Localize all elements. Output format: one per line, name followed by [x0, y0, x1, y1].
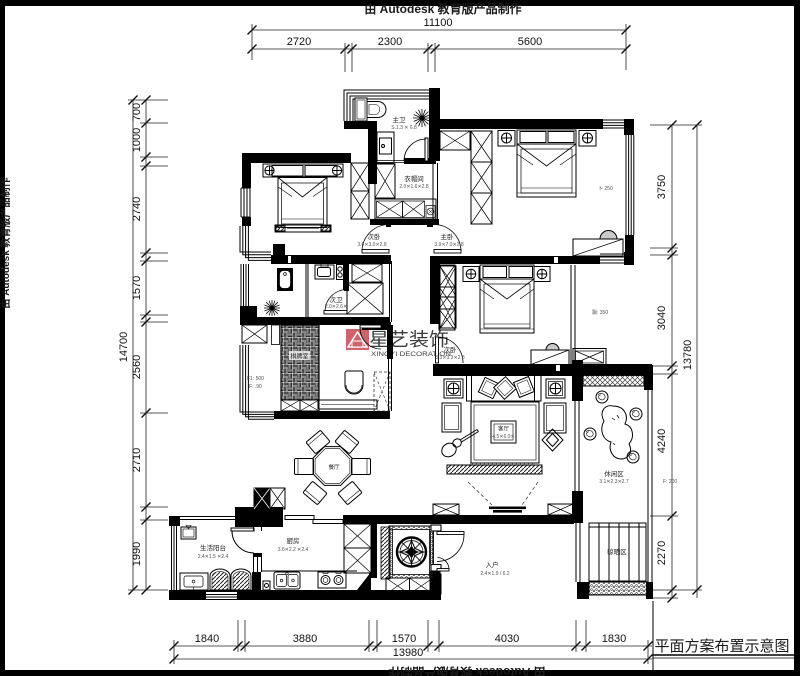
svg-text:1570: 1570	[131, 276, 143, 300]
svg-text:2710: 2710	[131, 448, 143, 472]
svg-text:4.5✕6.0✕: 4.5✕6.0✕	[492, 434, 514, 440]
svg-text:由 Autodesk 教育版产品制作: 由 Autodesk 教育版产品制作	[388, 665, 545, 676]
svg-text:F1: 500: F1: 500	[247, 376, 264, 382]
svg-text:1840: 1840	[195, 633, 219, 645]
svg-text:由 Autodesk 教育版产品制作: 由 Autodesk 教育版产品制作	[0, 177, 12, 308]
svg-text:3.3✕3.3✕2.8: 3.3✕3.3✕2.8	[435, 355, 464, 361]
svg-text:主卧: 主卧	[441, 232, 455, 241]
svg-text:衣帽间: 衣帽间	[404, 174, 424, 183]
svg-text:13980: 13980	[393, 647, 424, 659]
svg-text:2300: 2300	[378, 36, 402, 48]
svg-text:棋牌室: 棋牌室	[290, 353, 308, 361]
svg-text:1830: 1830	[602, 633, 626, 645]
svg-text:2.4✕1.9 / 6.2: 2.4✕1.9 / 6.2	[480, 571, 509, 577]
svg-text:700: 700	[131, 103, 143, 121]
svg-text:2560: 2560	[131, 355, 143, 379]
svg-text:主卫: 主卫	[393, 115, 407, 124]
svg-text:1570: 1570	[392, 633, 416, 645]
svg-text:厨房: 厨房	[287, 536, 300, 545]
svg-text:2.0✕2.6✕: 2.0✕2.6✕	[325, 304, 347, 310]
svg-text:F: 200: F: 200	[663, 479, 677, 485]
svg-text:4240: 4240	[656, 429, 668, 453]
svg-text:入户: 入户	[486, 560, 499, 569]
svg-text:休闲区: 休闲区	[604, 469, 624, 478]
svg-text:2.0✕1.6✕2.8: 2.0✕1.6✕2.8	[399, 184, 428, 190]
svg-text:次卧: 次卧	[368, 232, 382, 241]
svg-text:晾晒区: 晾晒区	[607, 547, 627, 556]
svg-text:1000: 1000	[131, 128, 143, 152]
svg-text:客厅: 客厅	[498, 425, 510, 433]
svg-text:餐厅: 餐厅	[328, 463, 340, 471]
svg-text:3.1✕2.3✕2.7: 3.1✕2.3✕2.7	[599, 479, 628, 485]
svg-text:F: .90: F: .90	[249, 384, 262, 390]
svg-text:S.1.3 ✕ 6.8: S.1.3 ✕ 6.8	[391, 125, 417, 131]
svg-text:2270: 2270	[656, 541, 668, 565]
svg-text:14700: 14700	[118, 332, 130, 363]
svg-text:2720: 2720	[287, 36, 311, 48]
svg-text:4030: 4030	[495, 633, 519, 645]
svg-text:3.9✕7.0✕2.8: 3.9✕7.0✕2.8	[434, 242, 463, 248]
svg-text:平面方案布置示意图: 平面方案布置示意图	[654, 637, 789, 655]
svg-text:3.6✕2.2 ✕2.4: 3.6✕2.2 ✕2.4	[278, 547, 309, 553]
svg-text:3750: 3750	[656, 175, 668, 199]
svg-text:次卫: 次卫	[330, 295, 344, 304]
svg-text:13780: 13780	[682, 340, 694, 371]
svg-text:飘: 350: 飘: 350	[592, 310, 608, 316]
svg-text:由 Autodesk 教育版产品制作: 由 Autodesk 教育版产品制作	[364, 1, 521, 16]
svg-text:1990: 1990	[131, 542, 143, 566]
svg-text:5600: 5600	[518, 36, 542, 48]
svg-text:11100: 11100	[424, 17, 453, 29]
svg-text:3040: 3040	[656, 306, 668, 330]
svg-text:卜 250: 卜 250	[598, 186, 613, 192]
svg-text:2.4✕1.5 ✕2.4: 2.4✕1.5 ✕2.4	[198, 554, 229, 560]
svg-text:3880: 3880	[293, 633, 317, 645]
svg-text:次卧: 次卧	[444, 345, 458, 354]
svg-text:生活阳台: 生活阳台	[200, 543, 226, 552]
svg-text:3.6✕3.0✕2.8: 3.6✕3.0✕2.8	[357, 242, 386, 248]
svg-text:2740: 2740	[131, 197, 143, 221]
